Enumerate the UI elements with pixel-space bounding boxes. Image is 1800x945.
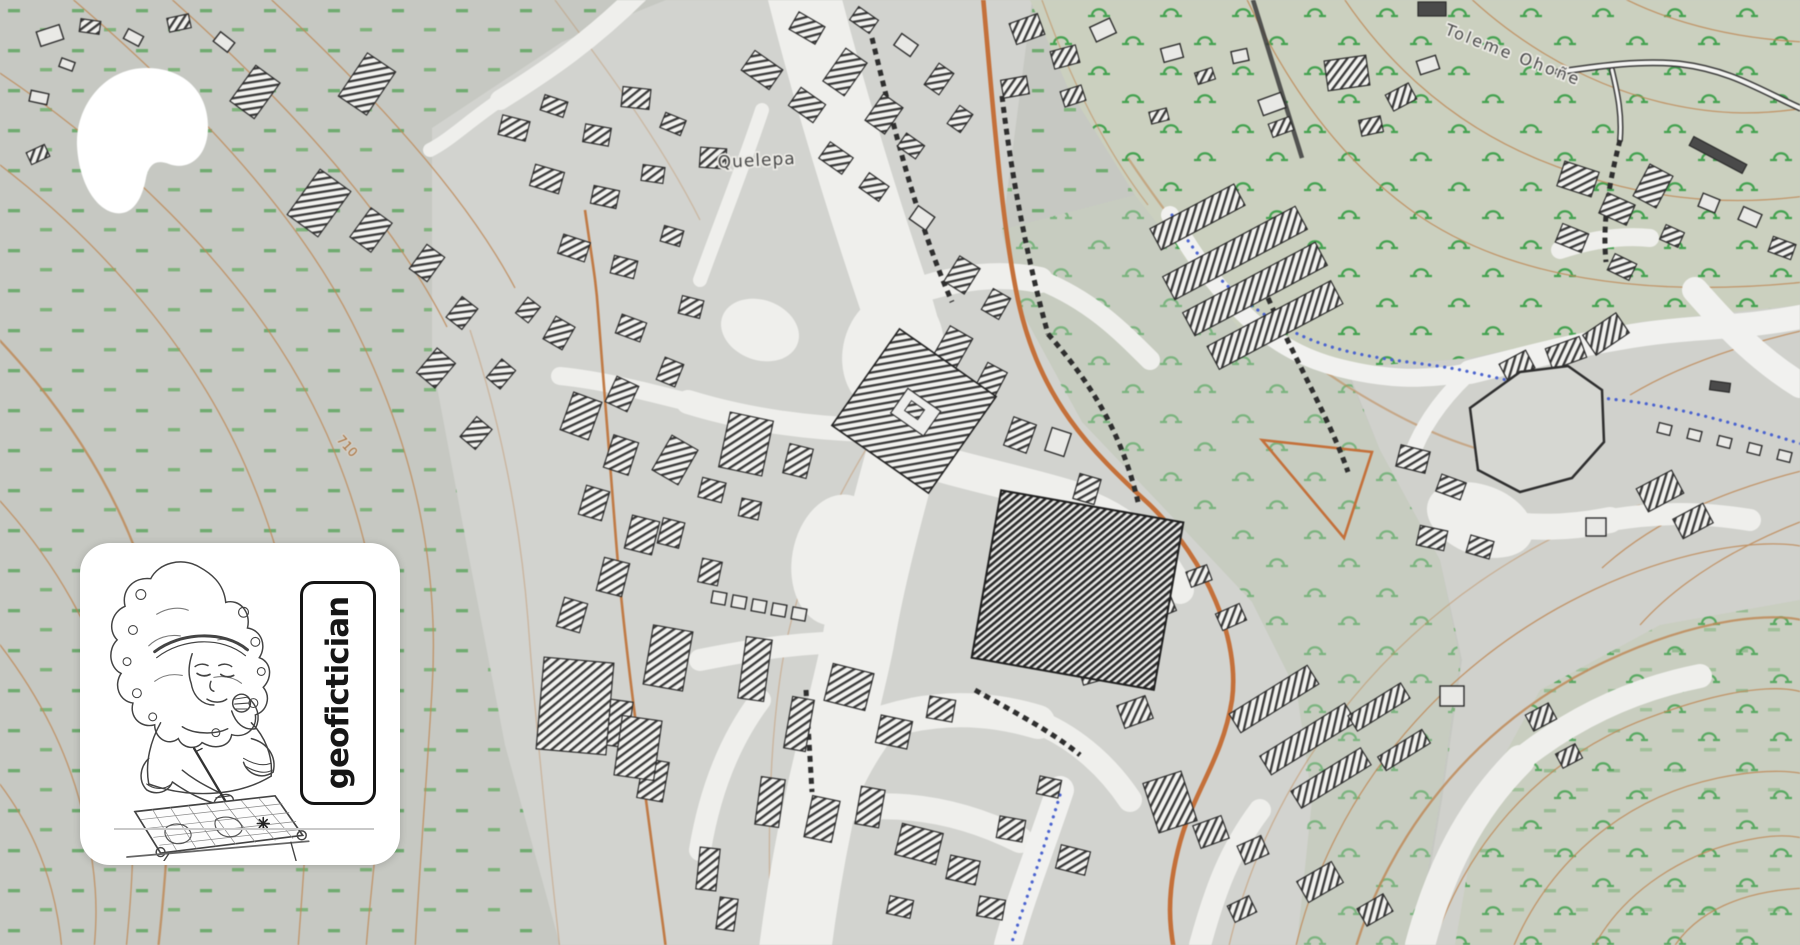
- building: [976, 896, 1005, 920]
- building: [1418, 2, 1446, 16]
- building: [996, 816, 1025, 842]
- building: [1657, 423, 1672, 436]
- building: [698, 558, 723, 586]
- large-hall-building: [972, 490, 1184, 690]
- building: [751, 599, 767, 613]
- building: [621, 87, 651, 110]
- building: [1036, 776, 1061, 798]
- building: [1001, 76, 1030, 98]
- building: [1777, 450, 1792, 463]
- building: [614, 716, 662, 781]
- building: [1709, 381, 1730, 393]
- building: [731, 595, 747, 609]
- building: [771, 603, 787, 617]
- building: [1231, 48, 1249, 63]
- building: [1687, 429, 1702, 442]
- building: [926, 696, 955, 722]
- creator-name-box: geofictician: [300, 581, 376, 805]
- building: [875, 715, 912, 749]
- building: [696, 847, 720, 891]
- building: [1747, 443, 1762, 456]
- building: [1440, 686, 1464, 706]
- building: [711, 591, 727, 605]
- building: [536, 657, 614, 755]
- creator-logo-card: geofictician: [80, 543, 400, 865]
- girl-drawing-map-sketch: [88, 555, 324, 861]
- building: [1586, 518, 1606, 536]
- building: [583, 124, 612, 146]
- building: [1324, 55, 1370, 91]
- creator-name: geofictician: [320, 597, 356, 789]
- building: [738, 498, 761, 520]
- building: [1717, 436, 1732, 449]
- building: [716, 897, 738, 931]
- building: [79, 19, 101, 35]
- settlement-label: Quelepa: [717, 149, 796, 173]
- building: [641, 165, 665, 184]
- map-image[interactable]: Quelepa Toleme Ohoñe 710: [0, 0, 1800, 945]
- sketch-ground-line: [114, 828, 374, 830]
- building: [791, 607, 807, 621]
